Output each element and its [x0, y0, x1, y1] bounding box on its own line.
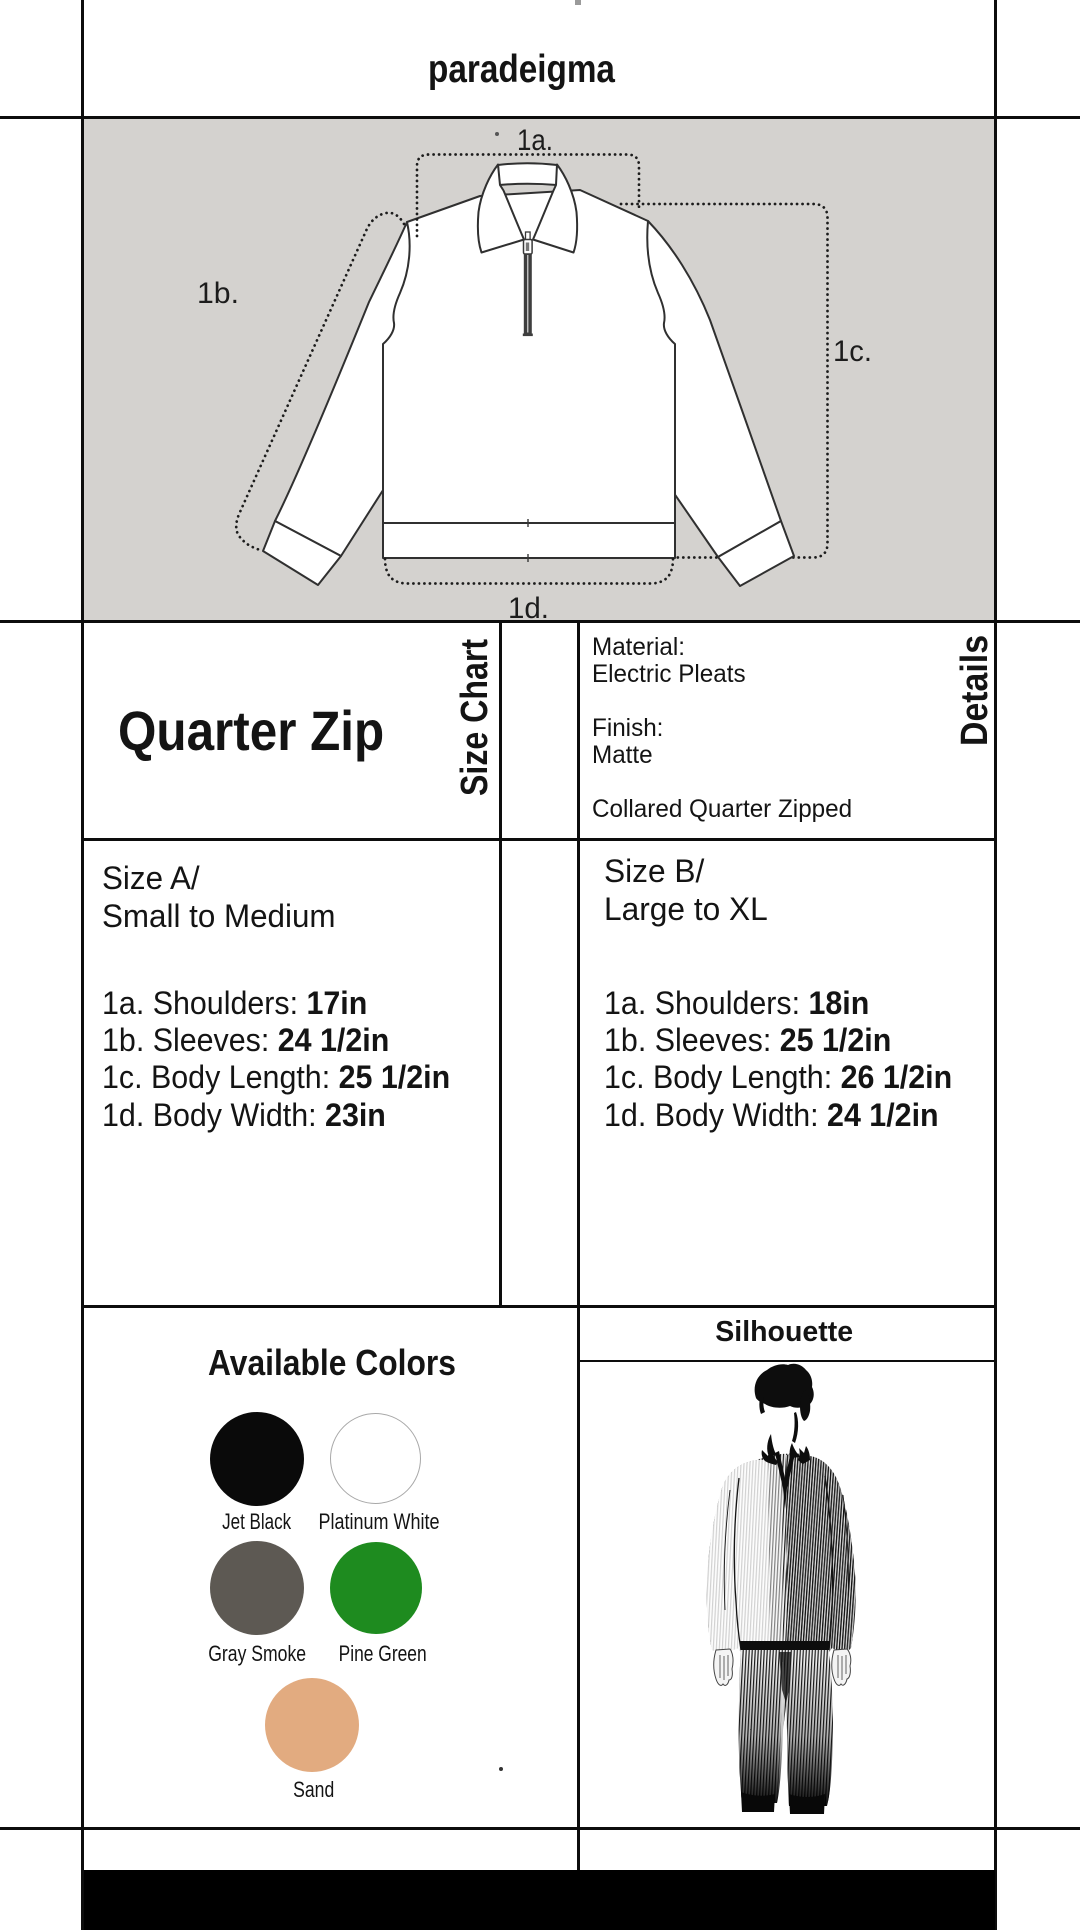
svg-text:1c.: 1c. — [833, 335, 872, 368]
svg-text:1b.: 1b. — [197, 277, 239, 310]
svg-text:1d.: 1d. — [508, 592, 549, 625]
svg-text:1a.: 1a. — [517, 124, 553, 157]
